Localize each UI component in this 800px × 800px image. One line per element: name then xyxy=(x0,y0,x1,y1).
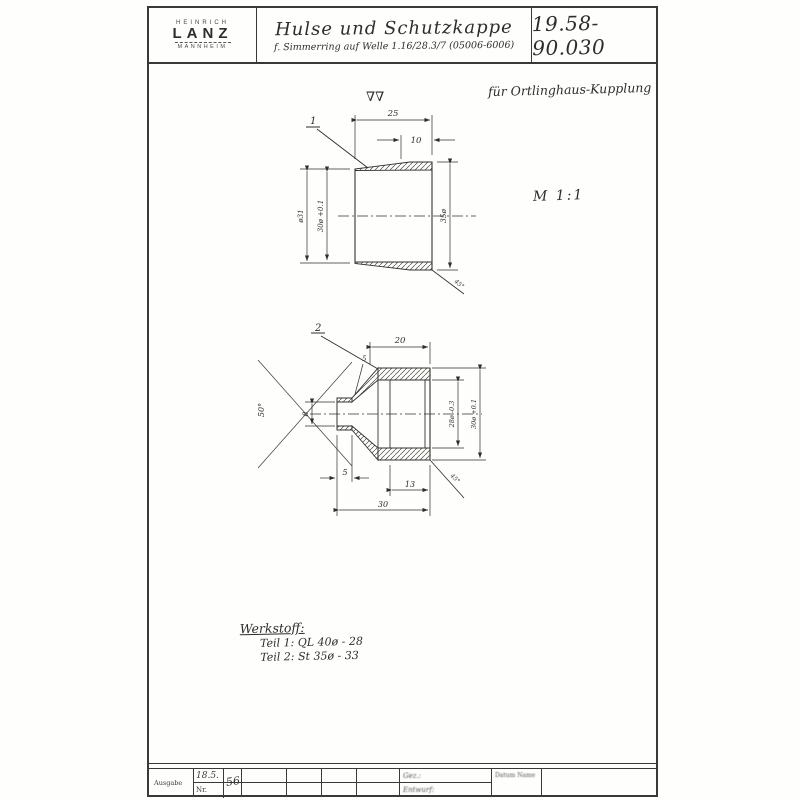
gez-field: Gez.: xyxy=(403,772,421,780)
dim-label-25: 25 xyxy=(387,109,399,119)
part2-leader-line xyxy=(321,336,378,369)
dim-label-tip-5: 5 xyxy=(342,468,347,477)
dim-label-20: 20 xyxy=(394,336,406,346)
entwurf-field: Entwurf: xyxy=(403,786,434,794)
logo-divider xyxy=(175,42,231,43)
sleeve-outline xyxy=(338,162,476,270)
revision-strip: Ausgabe 18.5. 56 Nr. Gez.: Entwurf: Datu… xyxy=(147,768,658,797)
dim-label-10: 10 xyxy=(411,136,422,146)
datum-name-field: Datum Name xyxy=(495,772,535,779)
dim-label-outer-left: ø31 xyxy=(297,209,305,223)
lanz-logo: HEINRICH LANZ MANNHEIM xyxy=(149,8,257,62)
part1-ref-label: 1 xyxy=(310,116,316,127)
footer-divider xyxy=(223,769,224,798)
footer-divider xyxy=(491,769,492,796)
dim-label-cone-angle: 50° xyxy=(257,403,266,417)
scale-note: M 1:1 xyxy=(533,187,585,205)
cap-outline xyxy=(310,368,482,460)
dim-label-outer-dia: 30ø +0.1 xyxy=(470,399,478,429)
ausgabe-label: Ausgabe xyxy=(154,779,182,787)
cap-section-drawing: 2 50° 5 xyxy=(250,320,530,530)
surface-finish-icon: ∇∇ xyxy=(366,90,384,105)
drawing-sheet-page: HEINRICH LANZ MANNHEIM Hulse und Schutzk… xyxy=(0,0,800,800)
title-cell: Hulse und Schutzkappe f. Simmerring auf … xyxy=(257,8,532,62)
title-block: HEINRICH LANZ MANNHEIM Hulse und Schutzk… xyxy=(147,6,658,64)
logo-name: LANZ xyxy=(173,26,233,42)
dim-label-inner-dia: 28ø -0.3 xyxy=(448,401,456,429)
dim-label-chamfer-2: 45° xyxy=(448,472,461,485)
number-cell: 19.58-90.030 xyxy=(532,8,656,62)
logo-city-line: MANNHEIM xyxy=(178,44,228,50)
part1-leader-line xyxy=(317,129,368,168)
issue-date: 18.5. xyxy=(196,771,219,781)
drawing-number: 19.58-90.030 xyxy=(532,10,657,60)
material-line-1: Teil 1: QL 40ø - 28 xyxy=(260,635,363,650)
dim-label-13: 13 xyxy=(405,480,415,489)
material-note: Werkstoff: Teil 1: QL 40ø - 28 Teil 2: S… xyxy=(240,619,364,665)
dim-label-bore: 30ø +0.1 xyxy=(317,200,325,232)
material-heading: Werkstoff: xyxy=(240,619,363,637)
material-line-2: Teil 2: St 35ø - 33 xyxy=(260,649,363,664)
drawing-subtitle: f. Simmerring auf Welle 1.16/28.3/7 (050… xyxy=(274,40,514,54)
dim-label-outer-right: 35ø xyxy=(439,208,448,223)
issue-year: 56 xyxy=(225,774,241,789)
footer-divider xyxy=(541,769,542,796)
dim-label-30: 30 xyxy=(378,500,388,509)
dim-label-chamfer-1: 45° xyxy=(452,278,465,291)
dim-label-wall-5: 5 xyxy=(362,355,367,363)
part2-ref-label: 2 xyxy=(314,323,321,334)
dim-label-8: 8 xyxy=(301,411,310,416)
sheet-bottom-rule xyxy=(147,763,658,764)
drawing-title: Hulse und Schutzkappe xyxy=(275,17,513,40)
nr-label: Nr. xyxy=(196,786,207,794)
sleeve-section-drawing: ∇∇ 1 25 10 xyxy=(280,85,500,300)
